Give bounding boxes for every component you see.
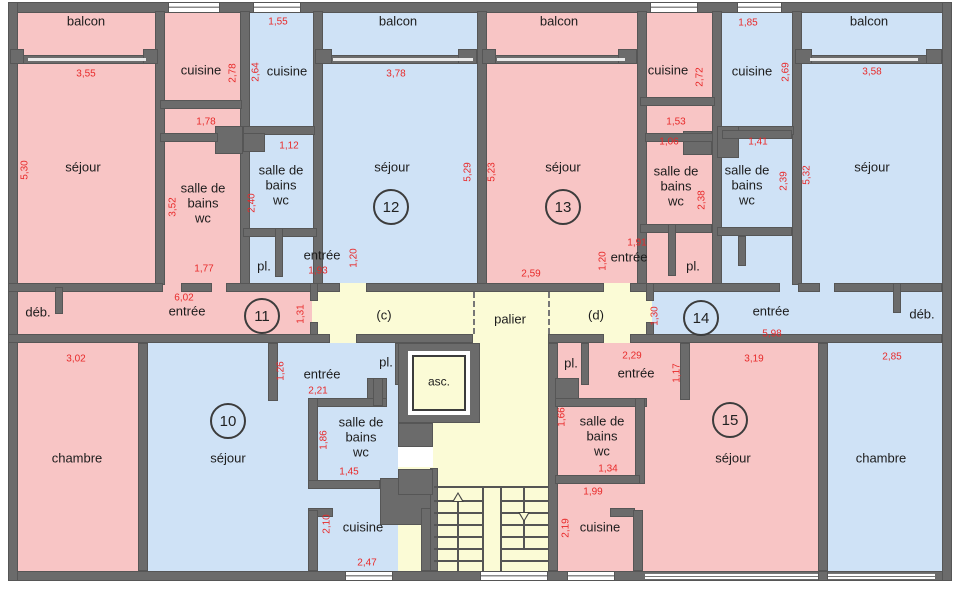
- dimension-1-66: 1,66: [557, 407, 568, 426]
- wall: [398, 423, 433, 447]
- apartment-number-10: 10: [210, 403, 246, 439]
- stair-line: [457, 500, 459, 571]
- dimension-2-21: 2,21: [308, 386, 327, 397]
- wall: [315, 49, 332, 64]
- wall: [243, 133, 265, 152]
- stair-line: [482, 486, 484, 571]
- wall: [635, 398, 645, 484]
- dimension-2-47: 2,47: [357, 558, 376, 569]
- wall: [366, 283, 604, 292]
- balcony-door-line: [497, 58, 625, 61]
- apartment-number-15: 15: [712, 402, 748, 438]
- glazed-wall: [828, 573, 935, 579]
- window: [480, 571, 548, 581]
- floor-plan: asc.balconbalconbalconbalconcuisinecuisi…: [0, 0, 960, 589]
- room-label-sejour-14: séjour: [854, 160, 889, 175]
- wall: [308, 510, 318, 571]
- wall: [633, 510, 643, 571]
- wall: [308, 398, 318, 488]
- room-label-entree-13: entrée: [611, 250, 648, 265]
- room-label-placard-15: pl.: [564, 356, 578, 371]
- room-label-chambre-15: chambre: [856, 451, 907, 466]
- dimension-2-29: 2,29: [622, 351, 641, 362]
- corridor-dashed-line: [473, 292, 475, 334]
- wall: [818, 343, 828, 571]
- room-label-corridor-c: (c): [376, 308, 391, 323]
- wall: [618, 49, 637, 64]
- balcony-door-line: [28, 58, 146, 61]
- dimension-1-20: 1,20: [349, 248, 360, 267]
- stair-line: [434, 486, 548, 488]
- room-label-cuisine-14: cuisine: [732, 64, 772, 79]
- room-label-placard-13: pl.: [686, 259, 700, 274]
- wall: [275, 228, 283, 277]
- room-label-sejour-10: séjour: [210, 451, 245, 466]
- room-label-salle-de-bains-11: salle debainswc: [181, 181, 226, 226]
- dimension-5-32: 5,32: [802, 165, 813, 184]
- dimension-1-99: 1,99: [583, 487, 602, 498]
- corridor-dashed-line: [548, 292, 550, 334]
- room-label-cuisine-13: cuisine: [648, 63, 688, 78]
- window: [168, 2, 220, 13]
- window: [345, 571, 393, 581]
- wall: [795, 49, 812, 64]
- room-label-cuisine-10: cuisine: [343, 520, 383, 535]
- dimension-1-55: 1,55: [268, 17, 287, 28]
- dimension-2-72: 2,72: [695, 67, 706, 86]
- room-label-deb-11: déb.: [25, 305, 50, 320]
- room-label-sejour-15: séjour: [715, 451, 750, 466]
- room-label-balcon-13: balcon: [540, 14, 578, 29]
- wall: [458, 49, 477, 64]
- room-label-palier: palier: [494, 312, 526, 327]
- dimension-2-40: 2,40: [247, 193, 258, 212]
- dimension-1-77: 1,77: [194, 264, 213, 275]
- wall: [555, 378, 579, 400]
- wall: [143, 49, 158, 64]
- dimension-3-19: 3,19: [744, 354, 763, 365]
- wall: [818, 571, 828, 581]
- wall: [798, 283, 820, 292]
- dimension-1-12: 1,12: [279, 141, 298, 152]
- region-apt11-upper: [18, 13, 240, 285]
- dimension-3-55: 3,55: [76, 69, 95, 80]
- wall: [8, 334, 330, 343]
- wall: [356, 334, 473, 343]
- room-label-corridor-d: (d): [588, 308, 604, 323]
- dimension-1-78: 1,78: [196, 117, 215, 128]
- room-label-sejour-12: séjour: [374, 160, 409, 175]
- wall: [226, 283, 340, 292]
- wall: [640, 224, 712, 233]
- wall: [630, 334, 942, 343]
- wall: [308, 480, 380, 489]
- wall: [646, 283, 654, 301]
- dimension-2-38: 2,38: [697, 190, 708, 209]
- balcony-door-line: [333, 58, 473, 61]
- dimension-2-19: 2,19: [561, 518, 572, 537]
- wall: [942, 2, 952, 581]
- apartment-number-11: 11: [244, 298, 280, 334]
- room-label-salle-de-bains-14: salle debainswc: [725, 163, 770, 208]
- wall: [215, 126, 243, 154]
- apartment-number-13: 13: [545, 189, 581, 225]
- region-apt13-upper: [487, 13, 712, 285]
- wall: [160, 133, 218, 142]
- dimension-1-91: 1,91: [627, 238, 646, 249]
- room-label-balcon-12: balcon: [379, 14, 417, 29]
- dimension-5-23: 5,23: [487, 162, 498, 181]
- apartment-number-14: 14: [683, 300, 719, 336]
- room-label-chambre-10: chambre: [52, 451, 103, 466]
- dimension-1-86: 1,86: [319, 430, 330, 449]
- wall: [8, 283, 163, 292]
- wall: [482, 49, 496, 64]
- dimension-1-34: 1,34: [598, 464, 617, 475]
- room-label-entree-11: entrée: [169, 304, 206, 319]
- window: [567, 571, 615, 581]
- dimension-2-39: 2,39: [779, 171, 790, 190]
- wall: [548, 334, 604, 343]
- wall: [926, 49, 942, 64]
- dimension-1-30: 1,30: [650, 306, 661, 325]
- dimension-5-29: 5,29: [463, 162, 474, 181]
- wall: [310, 283, 318, 301]
- dimension-2-85: 2,85: [882, 352, 901, 363]
- stair-line: [500, 486, 502, 571]
- wall: [10, 49, 24, 64]
- stair-line: [500, 560, 548, 562]
- window: [737, 2, 782, 13]
- wall: [373, 378, 383, 406]
- balcony-door-line: [810, 58, 918, 61]
- wall: [55, 287, 63, 314]
- dimension-3-58: 3,58: [862, 67, 881, 78]
- dimension-1-26: 1,26: [276, 361, 287, 380]
- wall: [555, 475, 640, 484]
- room-label-salle-de-bains-13: salle debainswc: [654, 164, 699, 209]
- dimension-1-93: 1,93: [308, 266, 327, 277]
- wall: [717, 227, 792, 236]
- dimension-2-64: 2,64: [251, 62, 262, 81]
- wall: [138, 343, 148, 571]
- room-label-balcon-14: balcon: [850, 14, 888, 29]
- dimension-3-52: 3,52: [168, 197, 179, 216]
- room-label-entree-14: entrée: [753, 304, 790, 319]
- dimension-3-02: 3,02: [66, 354, 85, 365]
- region-apt14-upper: [722, 13, 942, 285]
- dimension-1-85: 1,85: [738, 18, 757, 29]
- room-label-deb-14: déb.: [909, 307, 934, 322]
- dimension-1-45: 1,45: [339, 467, 358, 478]
- elevator-label: asc.: [428, 375, 450, 390]
- room-label-entree-12: entrée: [304, 248, 341, 263]
- room-label-sejour-11: séjour: [65, 160, 100, 175]
- wall: [581, 343, 589, 385]
- dimension-1-53: 1,53: [666, 117, 685, 128]
- dimension-5-30: 5,30: [20, 160, 31, 179]
- dimension-2-10: 2,10: [322, 514, 333, 533]
- room-label-placard-10: pl.: [379, 355, 393, 370]
- room-label-entree-15: entrée: [618, 366, 655, 381]
- stair-line: [500, 548, 548, 550]
- window: [650, 2, 698, 13]
- wall: [160, 100, 242, 109]
- dimension-1-06: 1,06: [659, 137, 678, 148]
- wall: [834, 283, 942, 292]
- room-label-salle-de-bains-15: salle debainswc: [580, 414, 625, 459]
- apartment-number-12: 12: [373, 189, 409, 225]
- dimension-2-78: 2,78: [228, 63, 239, 82]
- wall: [398, 469, 433, 495]
- dimension-1-17: 1,17: [672, 363, 683, 382]
- wall: [181, 283, 212, 292]
- wall: [668, 224, 676, 276]
- room-label-entree-10: entrée: [304, 367, 341, 382]
- room-label-cuisine-11: cuisine: [181, 63, 221, 78]
- room-label-cuisine-12: cuisine: [267, 64, 307, 79]
- dimension-6-02: 6,02: [174, 293, 193, 304]
- dimension-5-98: 5,98: [762, 329, 781, 340]
- room-label-placard-12: pl.: [257, 259, 271, 274]
- wall: [738, 236, 746, 266]
- dimension-1-31: 1,31: [296, 304, 307, 323]
- wall: [893, 283, 901, 313]
- wall: [645, 133, 713, 142]
- room-label-cuisine-15: cuisine: [580, 520, 620, 535]
- wall: [555, 398, 647, 407]
- room-label-sejour-13: séjour: [545, 160, 580, 175]
- room-label-balcon-11: balcon: [67, 14, 105, 29]
- window: [253, 2, 301, 13]
- wall: [610, 508, 635, 517]
- dimension-1-41: 1,41: [748, 137, 767, 148]
- dimension-1-20: 1,20: [598, 251, 609, 270]
- stairs-down-arrow: [518, 512, 530, 522]
- room-label-salle-de-bains-10: salle debainswc: [339, 415, 384, 460]
- dimension-3-78: 3,78: [386, 69, 405, 80]
- wall: [640, 97, 715, 106]
- room-label-salle-de-bains-12: salle debainswc: [259, 163, 304, 208]
- stairs-up-arrow: [452, 492, 464, 502]
- patch: [398, 447, 433, 467]
- dimension-2-69: 2,69: [781, 62, 792, 81]
- dimension-2-59: 2,59: [521, 269, 540, 280]
- glazed-wall: [645, 573, 818, 579]
